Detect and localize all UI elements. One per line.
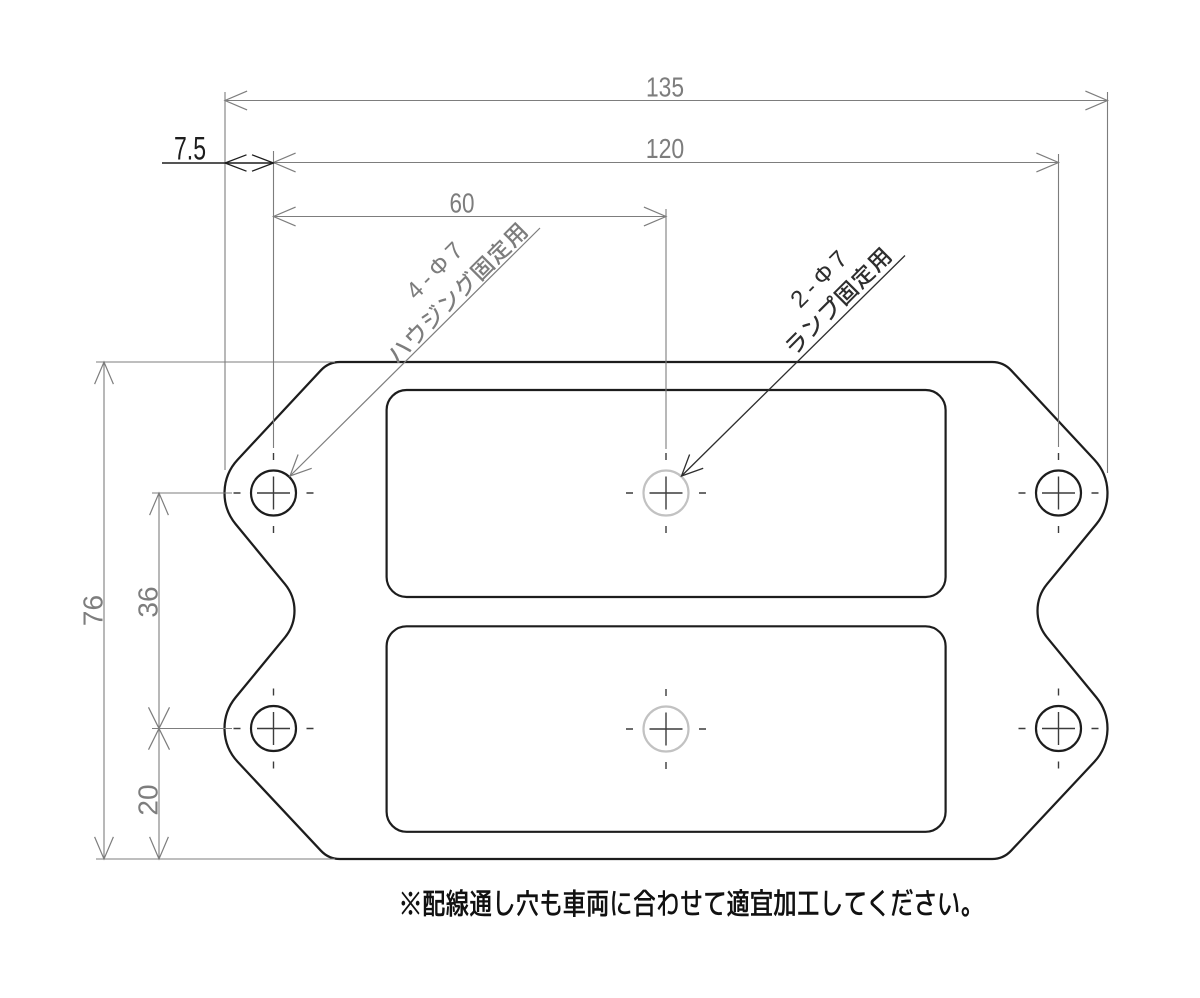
svg-text:135: 135 xyxy=(646,72,684,103)
svg-text:60: 60 xyxy=(450,188,475,219)
svg-text:4-Φ7: 4-Φ7 xyxy=(401,234,472,305)
svg-text:20: 20 xyxy=(133,784,164,815)
svg-text:76: 76 xyxy=(78,595,109,626)
svg-text:36: 36 xyxy=(133,586,164,617)
svg-text:120: 120 xyxy=(646,133,685,164)
svg-text:7.5: 7.5 xyxy=(174,131,206,167)
svg-text:2-Φ7: 2-Φ7 xyxy=(785,242,856,313)
